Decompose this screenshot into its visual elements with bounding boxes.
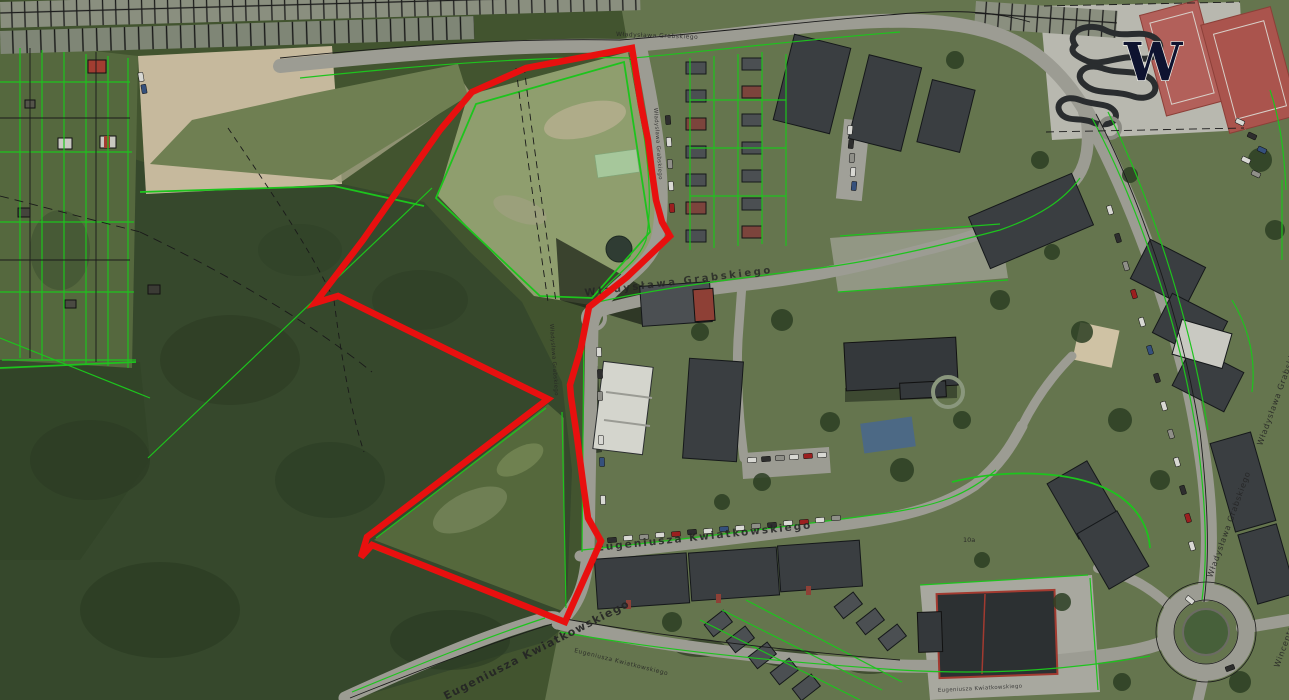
aerial-map: Władysława Grabskiego Władysława Grabski… [0,0,1289,700]
map-viewport[interactable]: Władysława Grabskiego Władysława Grabski… [0,0,1289,700]
w-monogram: W [1123,32,1184,93]
large-dark-building [937,590,1058,678]
building-label-10a: 10a [963,536,975,544]
